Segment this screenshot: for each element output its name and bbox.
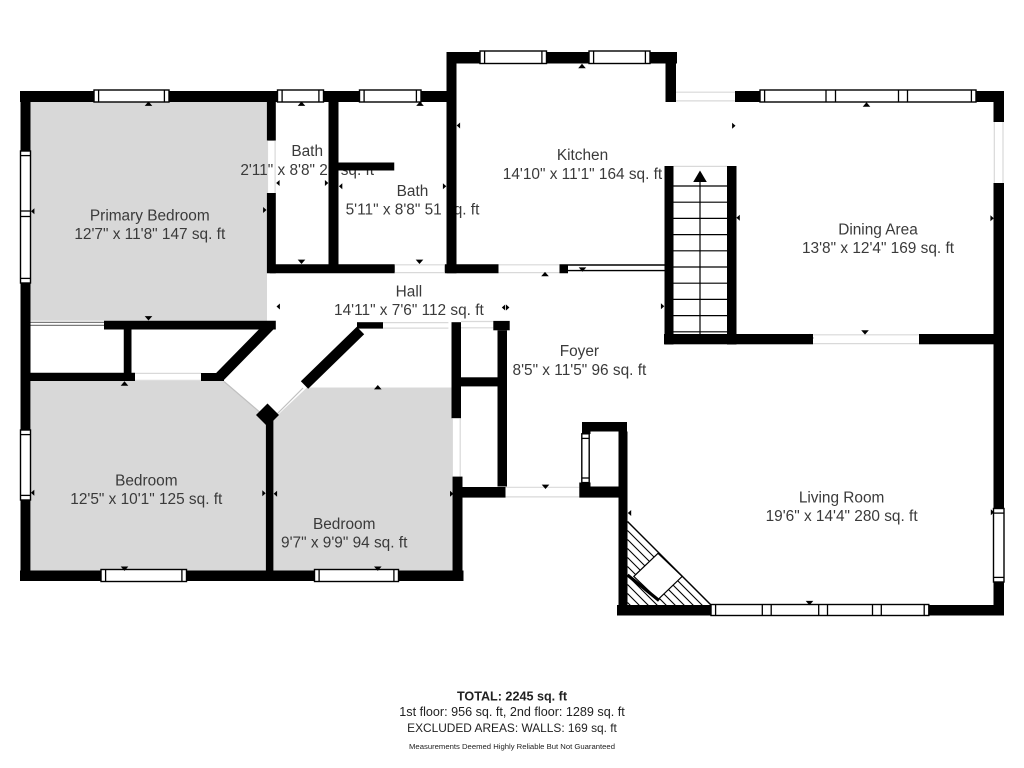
svg-text:Dining Area: Dining Area [838,221,918,238]
svg-text:Kitchen: Kitchen [557,147,608,164]
svg-text:19'6" x 14'4" 280 sq. ft: 19'6" x 14'4" 280 sq. ft [766,508,919,525]
svg-text:13'8" x 12'4" 169 sq. ft: 13'8" x 12'4" 169 sq. ft [802,240,955,257]
svg-text:Bath: Bath [291,143,323,160]
svg-text:TOTAL: 2245 sq. ft: TOTAL: 2245 sq. ft [457,689,568,703]
svg-text:5'11" x 8'8" 51 sq. ft: 5'11" x 8'8" 51 sq. ft [346,202,480,219]
svg-text:12'7" x 11'8" 147 sq. ft: 12'7" x 11'8" 147 sq. ft [74,226,226,243]
svg-text:Foyer: Foyer [560,343,599,360]
svg-text:14'10" x 11'1" 164 sq. ft: 14'10" x 11'1" 164 sq. ft [503,166,663,183]
svg-text:Living Room: Living Room [799,489,885,506]
svg-text:EXCLUDED AREAS: WALLS: 169 sq.: EXCLUDED AREAS: WALLS: 169 sq. ft [407,721,617,735]
svg-text:1st floor: 956 sq. ft, 2nd flo: 1st floor: 956 sq. ft, 2nd floor: 1289 s… [399,705,625,719]
svg-text:Bedroom: Bedroom [313,516,375,533]
svg-text:Hall: Hall [396,283,423,300]
svg-text:Bath: Bath [397,183,429,200]
svg-text:14'11" x 7'6" 112 sq. ft: 14'11" x 7'6" 112 sq. ft [334,302,484,319]
svg-text:12'5" x 10'1" 125 sq. ft: 12'5" x 10'1" 125 sq. ft [70,491,223,508]
svg-text:Measurements Deemed Highly Rel: Measurements Deemed Highly Reliable But … [409,742,615,751]
svg-text:9'7" x 9'9" 94 sq. ft: 9'7" x 9'9" 94 sq. ft [281,535,408,552]
svg-text:Bedroom: Bedroom [115,472,177,489]
svg-text:Primary Bedroom: Primary Bedroom [90,208,210,225]
svg-text:8'5" x 11'5" 96 sq. ft: 8'5" x 11'5" 96 sq. ft [513,362,647,379]
